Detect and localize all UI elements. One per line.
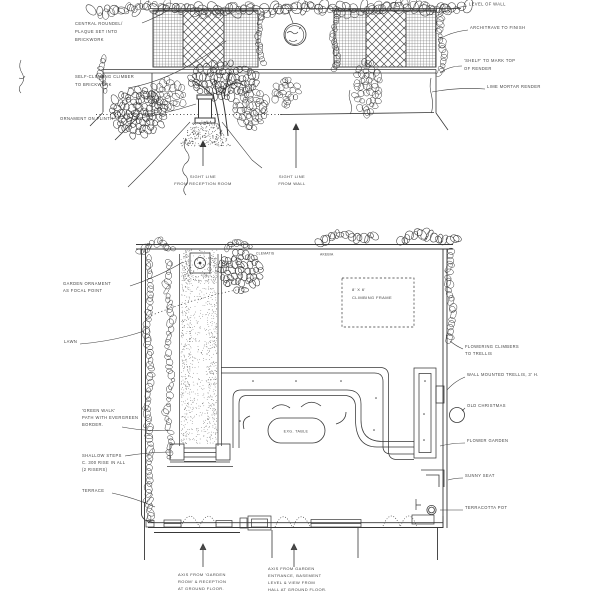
svg-text:TERRACE: TERRACE — [82, 488, 104, 493]
svg-text:FLOWER GARDEN: FLOWER GARDEN — [467, 438, 508, 443]
svg-text:AT GROUND FLOOR.: AT GROUND FLOOR. — [178, 586, 224, 591]
svg-text:BORDER.: BORDER. — [82, 422, 103, 427]
svg-text:FLOWERING CLIMBERS: FLOWERING CLIMBERS — [465, 344, 519, 349]
svg-text:'SHELF' TO MARK TOP: 'SHELF' TO MARK TOP — [464, 58, 515, 63]
svg-text:CLEMATIS: CLEMATIS — [256, 252, 275, 256]
svg-text:EXG. TABLE: EXG. TABLE — [284, 430, 309, 434]
svg-text:CLIMBING FRAME: CLIMBING FRAME — [352, 295, 392, 300]
svg-text:C. 300 RISE IN ALL: C. 300 RISE IN ALL — [82, 460, 126, 465]
svg-text:TERRACOTTA POT: TERRACOTTA POT — [465, 505, 507, 510]
svg-text:SIGHT LINE: SIGHT LINE — [190, 174, 216, 179]
svg-text:AS FOCAL POINT: AS FOCAL POINT — [63, 288, 102, 293]
svg-text:LAWN: LAWN — [64, 339, 77, 344]
svg-text:ORNAMENT ON PLINTH: ORNAMENT ON PLINTH — [60, 116, 114, 121]
svg-text:FROM WALL: FROM WALL — [278, 181, 306, 186]
svg-text:LIME MORTAR RENDER: LIME MORTAR RENDER — [487, 84, 541, 89]
svg-text:SHALLOW STEPS: SHALLOW STEPS — [82, 453, 122, 458]
svg-text:CENTRAL ROUNDEL/: CENTRAL ROUNDEL/ — [75, 21, 123, 26]
svg-text:LEVEL OF WALL: LEVEL OF WALL — [469, 2, 506, 7]
svg-text:AXIS FROM GARDEN: AXIS FROM GARDEN — [268, 566, 315, 571]
svg-text:SELF-CLIMBING CLIMBER: SELF-CLIMBING CLIMBER — [75, 74, 134, 79]
svg-text:FROM RECEPTION ROOM: FROM RECEPTION ROOM — [174, 181, 231, 186]
svg-text:GARDEN ORNAMENT: GARDEN ORNAMENT — [63, 281, 111, 286]
svg-text:TO BRICKWORK: TO BRICKWORK — [75, 82, 112, 87]
svg-text:ROOM' & RECEPTION: ROOM' & RECEPTION — [178, 579, 226, 584]
svg-text:AKEBIA: AKEBIA — [320, 253, 334, 257]
svg-text:LEVEL & VIEW FROM: LEVEL & VIEW FROM — [268, 580, 315, 585]
svg-text:SIGHT LINE: SIGHT LINE — [279, 174, 305, 179]
svg-text:ENTRANCE, BASEMENT: ENTRANCE, BASEMENT — [268, 573, 322, 578]
svg-text:8' X 6': 8' X 6' — [352, 287, 366, 292]
svg-text:BRICKWORK: BRICKWORK — [75, 37, 104, 42]
svg-text:PATH WITH EVERGREEN: PATH WITH EVERGREEN — [82, 415, 138, 420]
svg-text:HALL AT GROUND FLOOR.: HALL AT GROUND FLOOR. — [268, 587, 327, 592]
svg-text:OF RENDER: OF RENDER — [464, 66, 492, 71]
svg-text:WALL MOUNTED TRELLIS, 3' H.: WALL MOUNTED TRELLIS, 3' H. — [467, 372, 539, 377]
svg-text:TO TRELLIS: TO TRELLIS — [465, 351, 492, 356]
svg-text:(2 RISERS): (2 RISERS) — [82, 467, 108, 472]
svg-text:ARCHITRAVE TO FINISH: ARCHITRAVE TO FINISH — [470, 25, 525, 30]
svg-text:'GREEN WALK': 'GREEN WALK' — [82, 408, 116, 413]
svg-text:SUNNY SEAT: SUNNY SEAT — [465, 473, 495, 478]
svg-text:OLD CHRISTMAS: OLD CHRISTMAS — [467, 403, 506, 408]
svg-text:PLAQUE SET INTO: PLAQUE SET INTO — [75, 29, 117, 34]
svg-text:AXIS FROM 'GARDEN: AXIS FROM 'GARDEN — [178, 572, 226, 577]
